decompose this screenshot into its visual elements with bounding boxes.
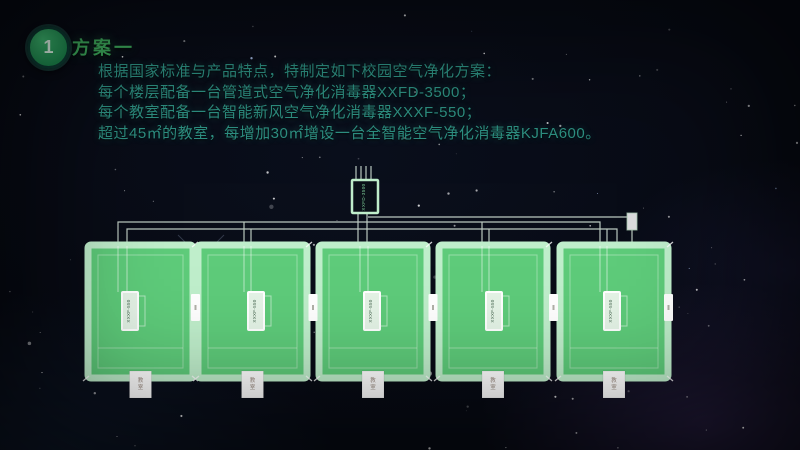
step-number: 1 xyxy=(43,37,53,58)
room-name-label: 教室 xyxy=(611,376,617,391)
central-unit-label: XXFD-3500 xyxy=(361,183,366,210)
door-5 xyxy=(664,294,673,321)
classroom-5: XXXF-550教室 xyxy=(555,242,673,398)
duct-valve xyxy=(627,213,637,230)
room-name-label: 教室 xyxy=(250,376,256,391)
door-1 xyxy=(191,294,200,321)
classroom-wall xyxy=(88,245,193,378)
step-number-badge: 1 xyxy=(27,26,70,69)
classroom-2: XXXF-550教室 xyxy=(193,242,312,398)
plan-description: 根据国家标准与产品特点，特制定如下校园空气净化方案： 每个楼层配备一台管道式空气… xyxy=(98,62,678,144)
room-name-label: 教室 xyxy=(138,376,144,391)
classroom-unit-label: XXXF-550 xyxy=(368,299,373,322)
classroom-unit-label: XXXF-550 xyxy=(608,299,613,322)
room-name-label: 教室 xyxy=(490,376,496,391)
plan-line-3: 每个教室配备一台智能新风空气净化消毒器XXXF-550； xyxy=(98,103,678,124)
plan-line-2: 每个楼层配备一台管道式空气净化消毒器XXFD-3500； xyxy=(98,83,678,104)
slide-title: 方案一 xyxy=(72,34,135,60)
classroom-unit-label: XXXF-550 xyxy=(252,299,257,322)
door-3 xyxy=(429,294,438,321)
classroom-3: XXXF-550教室 xyxy=(314,242,432,398)
classroom-unit-label: XXXF-550 xyxy=(126,299,131,322)
presentation-slide: 1 方案一 根据国家标准与产品特点，特制定如下校园空气净化方案： 每个楼层配备一… xyxy=(0,0,800,450)
plan-line-4: 超过45㎡的教室，每增加30㎡增设一台全智能空气净化消毒器KJFA600。 xyxy=(98,124,678,145)
room-name-label: 教室 xyxy=(370,376,376,391)
door-4 xyxy=(549,294,558,321)
classroom-1: XXXF-550教室 xyxy=(83,242,198,398)
plan-line-1: 根据国家标准与产品特点，特制定如下校园空气净化方案： xyxy=(98,62,678,83)
door-2 xyxy=(309,294,318,321)
classroom-unit-label: XXXF-550 xyxy=(490,299,495,322)
classroom-4: XXXF-550教室 xyxy=(434,242,552,398)
central-purifier-unit: XXFD-3500 xyxy=(352,180,378,213)
